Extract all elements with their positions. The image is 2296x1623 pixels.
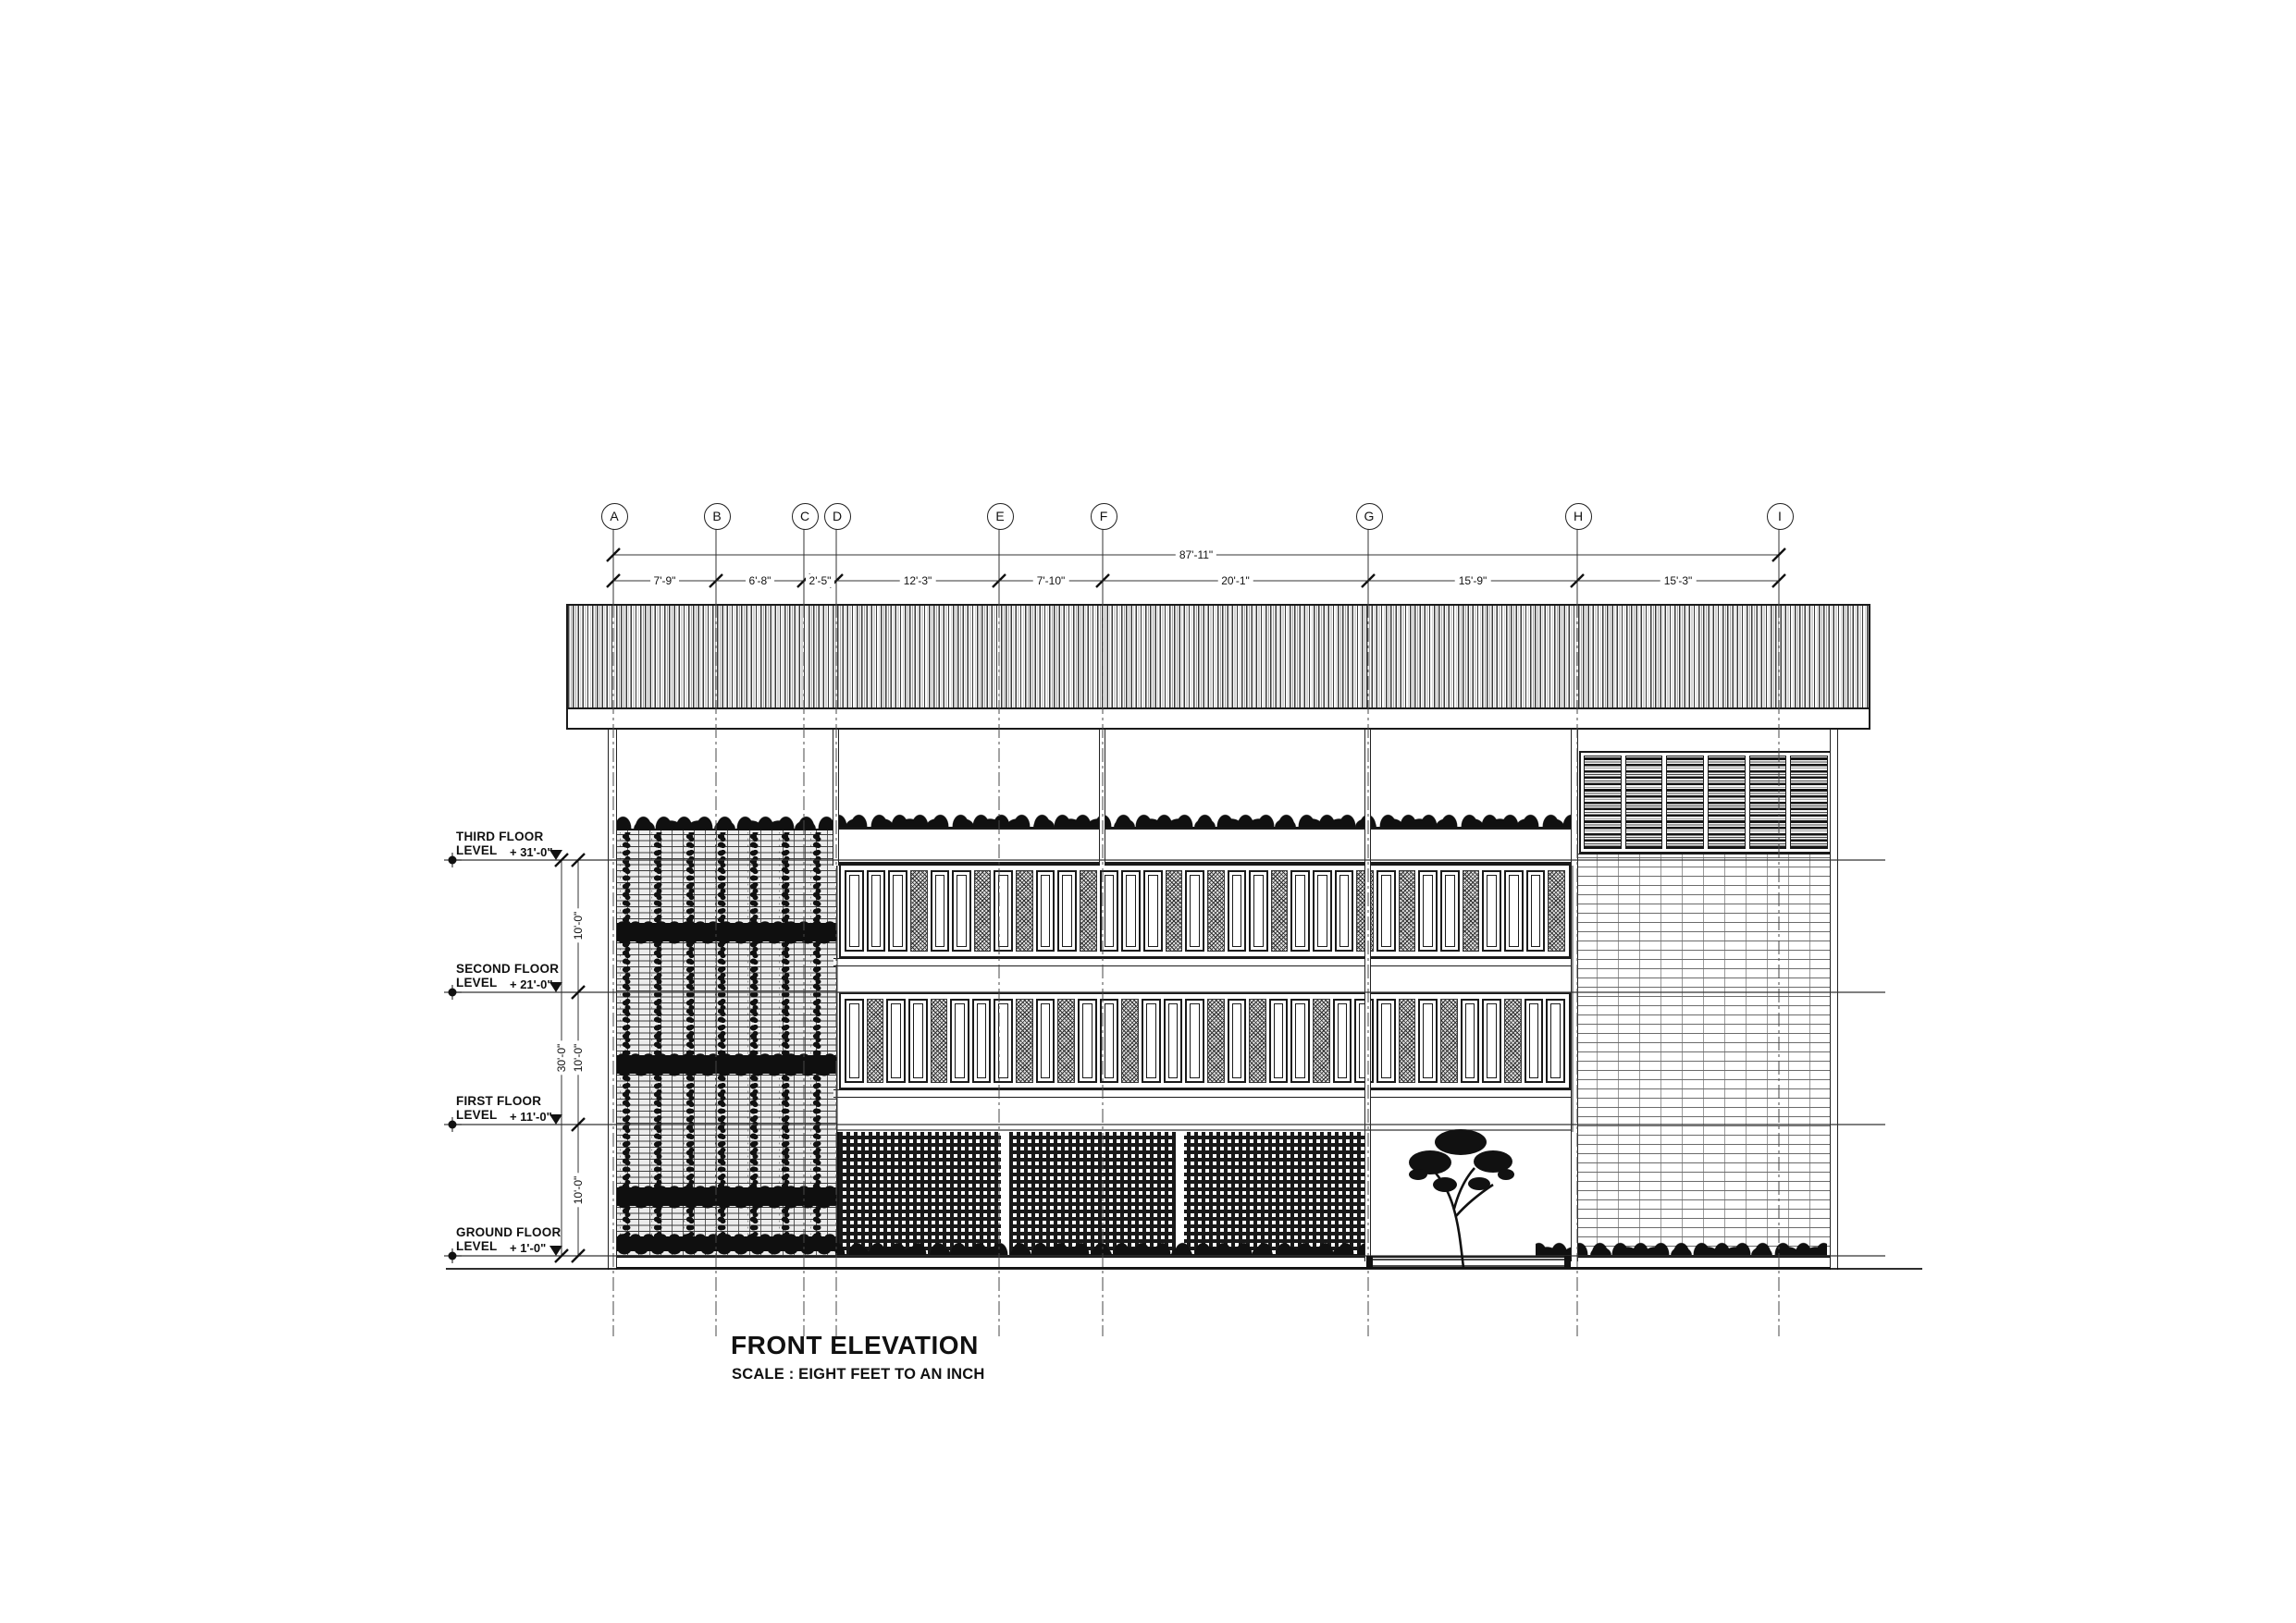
window-cell bbox=[886, 999, 906, 1083]
window-cell bbox=[845, 870, 864, 952]
window-cell bbox=[1249, 870, 1268, 952]
level-label: LEVEL bbox=[456, 1239, 498, 1253]
hatch-panel bbox=[1399, 870, 1416, 952]
window-cell bbox=[1121, 870, 1141, 952]
hatch-panel bbox=[1080, 870, 1097, 952]
foliage-band bbox=[616, 1232, 836, 1256]
level-value: + 1'-0" bbox=[510, 1241, 546, 1255]
vertical-dim-label: 10'-0" bbox=[572, 909, 585, 943]
louver-grille bbox=[1579, 751, 1833, 854]
hatch-panel bbox=[1057, 999, 1075, 1083]
louver-panel bbox=[1708, 756, 1746, 849]
foliage-band bbox=[616, 1183, 836, 1211]
hatch-panel bbox=[1121, 999, 1139, 1083]
grid-bubble-G: G bbox=[1356, 503, 1383, 530]
window-cell bbox=[1418, 999, 1438, 1083]
level-value: + 21'-0" bbox=[510, 977, 552, 991]
corrugated-roof-sheet bbox=[568, 606, 1869, 709]
level-label: FIRST FLOOR bbox=[456, 1094, 541, 1108]
window-cell bbox=[972, 999, 992, 1083]
window-cell bbox=[1185, 870, 1204, 952]
louver-panel bbox=[1584, 756, 1622, 849]
hatch-panel bbox=[867, 999, 884, 1083]
window-cell bbox=[1482, 870, 1501, 952]
dim-label: 7'-9" bbox=[650, 574, 680, 587]
tree-canopy bbox=[1433, 1177, 1457, 1192]
window-cell bbox=[1290, 870, 1310, 952]
window-sill-second bbox=[833, 1089, 1576, 1098]
grid-bubble-A: A bbox=[601, 503, 628, 530]
roof-fascia bbox=[568, 709, 1869, 728]
louver-panel bbox=[1790, 756, 1828, 849]
planter-band bbox=[837, 828, 1573, 864]
dimension-tick bbox=[993, 574, 1006, 587]
level-value: + 31'-0" bbox=[510, 845, 552, 859]
hatch-panel bbox=[1016, 870, 1033, 952]
window-cell bbox=[1100, 999, 1119, 1083]
hatch-panel bbox=[1271, 870, 1289, 952]
window-cell bbox=[1482, 999, 1501, 1083]
window-cell bbox=[1504, 870, 1524, 952]
grid-bubble-I: I bbox=[1767, 503, 1794, 530]
dim-label: 2'-5" bbox=[806, 574, 835, 587]
overall-dimension-label: 87'-11" bbox=[1176, 548, 1216, 561]
hatch-panel bbox=[974, 870, 992, 952]
level-label: LEVEL bbox=[456, 1108, 498, 1122]
level-label: SECOND FLOOR bbox=[456, 962, 559, 976]
vertical-overall-dimension-label: 30'-0" bbox=[555, 1041, 568, 1076]
dim-label: 15'-9" bbox=[1455, 574, 1491, 587]
column-grid-g bbox=[1364, 730, 1371, 1261]
window-cell bbox=[1418, 870, 1438, 952]
louver-panel bbox=[1749, 756, 1787, 849]
column-grid-h bbox=[1571, 730, 1578, 1261]
window-cell bbox=[1228, 870, 1247, 952]
dim-label: 15'-3" bbox=[1660, 574, 1697, 587]
window-cell bbox=[1100, 870, 1119, 952]
window-cell bbox=[1269, 999, 1289, 1083]
window-cell bbox=[1142, 999, 1161, 1083]
window-cell bbox=[1335, 870, 1354, 952]
window-cell bbox=[1313, 870, 1332, 952]
window-cell bbox=[1333, 999, 1352, 1083]
dimension-tick bbox=[555, 1249, 568, 1262]
vertical-dim-label: 10'-0" bbox=[572, 1041, 585, 1076]
window-cell bbox=[867, 870, 886, 952]
dim-label: 20'-1" bbox=[1217, 574, 1253, 587]
column-left-edge bbox=[608, 730, 617, 1270]
ground-shrub-row-left bbox=[835, 1232, 1367, 1257]
drawing-scale: SCALE : EIGHT FEET TO AN INCH bbox=[732, 1366, 984, 1383]
dimension-tick bbox=[572, 1249, 585, 1262]
window-cell bbox=[1036, 870, 1055, 952]
hatch-panel bbox=[1207, 999, 1225, 1083]
hatch-panel bbox=[1016, 999, 1033, 1083]
hatch-panel bbox=[1313, 999, 1330, 1083]
dimension-tick bbox=[1571, 574, 1584, 587]
hatch-panel bbox=[1440, 999, 1458, 1083]
hatch-panel bbox=[1166, 870, 1183, 952]
window-cell bbox=[1546, 999, 1565, 1083]
grid-bubble-H: H bbox=[1565, 503, 1592, 530]
hatch-panel bbox=[910, 870, 928, 952]
column-grid-f bbox=[1099, 730, 1105, 866]
window-cell bbox=[888, 870, 907, 952]
window-cell bbox=[994, 870, 1013, 952]
window-band-third-floor bbox=[839, 864, 1571, 958]
window-cell bbox=[931, 870, 950, 952]
window-cell bbox=[1290, 999, 1310, 1083]
louver-panel bbox=[1625, 756, 1663, 849]
level-label: LEVEL bbox=[456, 976, 498, 990]
tree-canopy bbox=[1498, 1169, 1514, 1180]
hatch-panel bbox=[1399, 999, 1416, 1083]
window-sill-third bbox=[833, 958, 1576, 966]
tree-canopy bbox=[1468, 1177, 1490, 1190]
column-grid-d bbox=[833, 730, 839, 866]
hatch-panel bbox=[1504, 999, 1522, 1083]
vertical-dim-label: 10'-0" bbox=[572, 1174, 585, 1208]
dim-label: 6'-8" bbox=[746, 574, 775, 587]
ground-shrub-row-right bbox=[1536, 1232, 1827, 1257]
drawing-title: FRONT ELEVATION bbox=[731, 1331, 979, 1360]
tree-canopy bbox=[1474, 1150, 1512, 1173]
window-cell bbox=[1036, 999, 1055, 1083]
window-cell bbox=[1376, 999, 1396, 1083]
tree-canopy bbox=[1409, 1169, 1427, 1180]
green-wall-top-planter bbox=[611, 805, 839, 830]
dimension-tick bbox=[1772, 574, 1785, 587]
dim-label: 7'-10" bbox=[1033, 574, 1069, 587]
green-wall bbox=[616, 829, 837, 1256]
window-cell bbox=[908, 999, 928, 1083]
window-planter-shrub-row bbox=[837, 801, 1573, 829]
window-cell bbox=[1461, 999, 1480, 1083]
window-cell bbox=[1057, 870, 1077, 952]
window-cell bbox=[1228, 999, 1247, 1083]
dimension-tick bbox=[572, 854, 585, 867]
window-cell bbox=[1526, 870, 1546, 952]
window-band-second-floor bbox=[839, 992, 1571, 1089]
dimension-tick bbox=[555, 854, 568, 867]
window-cell bbox=[1440, 870, 1460, 952]
hatch-panel bbox=[931, 999, 948, 1083]
level-value: + 11'-0" bbox=[510, 1110, 552, 1124]
window-cell bbox=[1164, 999, 1183, 1083]
window-cell bbox=[1078, 999, 1097, 1083]
tree-trunk bbox=[1433, 1168, 1493, 1268]
dim-label: 12'-3" bbox=[900, 574, 936, 587]
dimension-tick bbox=[572, 986, 585, 999]
louver-panel bbox=[1666, 756, 1704, 849]
hatch-panel bbox=[1249, 999, 1266, 1083]
window-cell bbox=[845, 999, 864, 1083]
tree-canopy bbox=[1435, 1129, 1487, 1155]
dimension-tick bbox=[607, 574, 620, 587]
grid-bubble-D: D bbox=[824, 503, 851, 530]
foliage-band bbox=[616, 918, 836, 946]
window-cell bbox=[994, 999, 1013, 1083]
window-cell bbox=[1185, 999, 1204, 1083]
plinth-base bbox=[608, 1256, 1838, 1269]
level-arrow-icon bbox=[549, 1246, 562, 1256]
elevation-sheet: 87'-11" 30'-0" FRONT ELEVATION SCALE : E… bbox=[0, 0, 2296, 1623]
hatch-panel bbox=[1207, 870, 1225, 952]
window-cell bbox=[952, 870, 971, 952]
hatch-panel bbox=[1548, 870, 1565, 952]
grid-bubble-C: C bbox=[792, 503, 819, 530]
dimension-tick bbox=[1096, 574, 1109, 587]
grid-bubble-F: F bbox=[1091, 503, 1117, 530]
tree-canopy bbox=[1409, 1150, 1451, 1174]
dimension-tick bbox=[607, 548, 620, 561]
roof-assembly bbox=[566, 604, 1870, 730]
grid-bubble-B: B bbox=[704, 503, 731, 530]
dimension-tick bbox=[710, 574, 722, 587]
level-label: THIRD FLOOR bbox=[456, 830, 543, 843]
brick-wall bbox=[1575, 854, 1837, 1256]
level-label: GROUND FLOOR bbox=[456, 1225, 561, 1239]
dimension-tick bbox=[1362, 574, 1375, 587]
foliage-band bbox=[616, 1051, 836, 1078]
grid-bubble-E: E bbox=[987, 503, 1014, 530]
dimension-tick bbox=[1772, 548, 1785, 561]
window-cell bbox=[1143, 870, 1163, 952]
window-cell bbox=[1524, 999, 1544, 1083]
level-label: LEVEL bbox=[456, 843, 498, 857]
window-cell bbox=[1376, 870, 1396, 952]
dimension-tick bbox=[572, 1118, 585, 1131]
window-cell bbox=[950, 999, 969, 1083]
column-right-edge bbox=[1830, 730, 1838, 1270]
hatch-panel bbox=[1463, 870, 1480, 952]
